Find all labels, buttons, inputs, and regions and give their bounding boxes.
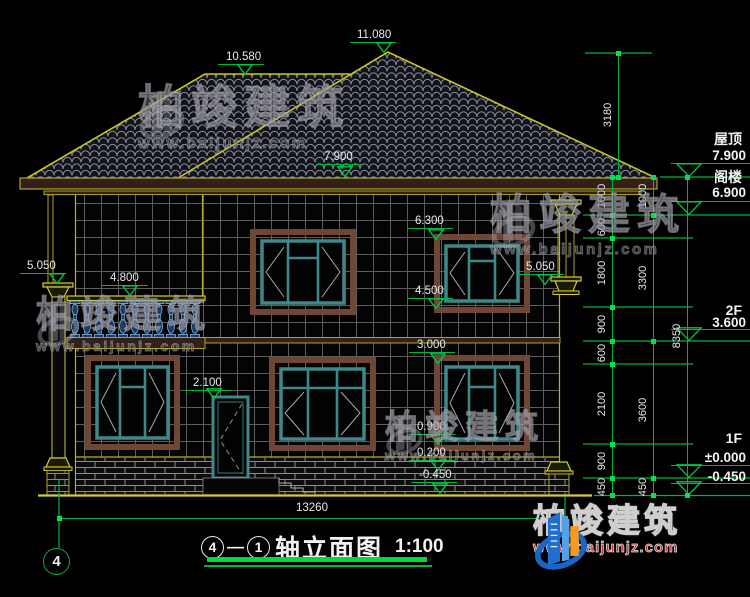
dim-value: 3600 — [637, 387, 649, 433]
dim-tick — [685, 175, 690, 180]
watermark: 柏竣建筑www.baijunjz.com — [36, 296, 212, 354]
elevation-marker-label: 5.050 — [27, 261, 56, 273]
elevation-marker-triangle — [337, 166, 353, 177]
dim-tick — [610, 339, 615, 344]
dim-tick — [685, 493, 690, 498]
elevation-marker-triangle — [537, 274, 553, 285]
elevation-marker-label: 11.080 — [357, 30, 391, 42]
door-stoop — [203, 478, 279, 495]
elevation-marker-triangle — [432, 483, 448, 494]
brand-logo: 柏竣建筑 www.baijunjz.com — [533, 503, 681, 556]
watermark-logo-icon — [490, 194, 537, 254]
title-axis-bubble-start: 4 — [201, 536, 224, 559]
dim-tick — [610, 305, 615, 310]
floor-flag-value: -0.450 — [692, 470, 746, 484]
watermark: 柏竣建筑www.baijunjz.com — [138, 84, 350, 152]
floor-flag-value: ±0.000 — [692, 451, 746, 465]
dim-value: 8350 — [671, 313, 683, 359]
dim-tick — [610, 175, 615, 180]
dim-tick — [616, 175, 621, 180]
title-axis-separator: — — [227, 537, 244, 557]
dim-value: 600 — [596, 330, 608, 376]
watermark: 柏竣建筑www.baijunjz.com — [490, 194, 686, 258]
elevation-marker-label: 3.000 — [417, 340, 446, 352]
floor-flag-name: 屋顶 — [696, 132, 742, 146]
elevation-marker-label: 10.580 — [226, 52, 261, 64]
axis-bubble-4: 4 — [43, 548, 70, 575]
dim-chain-line — [687, 177, 688, 495]
floor-flag-value: 7.900 — [692, 149, 746, 163]
dim-tick — [610, 493, 615, 498]
elevation-marker-triangle — [49, 273, 65, 284]
entry-door — [213, 397, 248, 478]
dim-tick — [651, 476, 656, 481]
elevation-marker-triangle — [428, 229, 444, 240]
plinth-brick — [76, 458, 559, 494]
elevation-marker-label: 6.300 — [415, 216, 444, 228]
dim-value: 3300 — [637, 255, 649, 301]
elevation-marker-label: -0.450 — [419, 470, 452, 482]
title-underline — [207, 557, 427, 562]
dim-value: 13260 — [272, 502, 352, 514]
elevation-marker-label: 4.800 — [110, 273, 139, 285]
watermark: 柏竣建筑www.baijunjz.com — [385, 410, 545, 463]
floor-flag-value: 6.900 — [692, 186, 746, 200]
elevation-marker-triangle — [428, 298, 444, 309]
dim-tick — [651, 175, 656, 180]
dim-value: 2100 — [596, 381, 608, 427]
elevation-marker-label: 7.900 — [324, 152, 353, 164]
dim-tick — [616, 51, 621, 56]
elevation-marker-triangle — [237, 64, 253, 75]
elevation-marker-label: 5.050 — [526, 262, 555, 274]
dim-tick — [651, 493, 656, 498]
watermark-logo-icon — [138, 84, 186, 146]
watermark-logo-icon — [36, 296, 80, 352]
eave-fascia — [20, 178, 657, 189]
dim-tick — [651, 339, 656, 344]
floor-flag-name: 阁楼 — [696, 170, 742, 184]
dim-value: 3180 — [602, 92, 614, 138]
window-1f-center — [272, 360, 373, 448]
elevation-marker-triangle — [430, 353, 446, 364]
elevation-marker-triangle — [206, 388, 222, 399]
title-axis-bubble-end: 1 — [247, 536, 270, 559]
dim-chain-line — [618, 53, 619, 177]
title-underline-thin — [204, 565, 432, 567]
drawing-scale: 1:100 — [395, 536, 444, 558]
dim-chain-line — [59, 518, 565, 519]
window-2f-left — [253, 232, 353, 312]
cad-elevation-drawing: 10.58011.0807.9006.3004.5003.0002.1000.9… — [0, 0, 750, 597]
brand-logo-icon — [533, 503, 589, 579]
floor-flag-value: 3.600 — [692, 316, 746, 330]
dim-tick — [610, 362, 615, 367]
elevation-marker-triangle — [376, 42, 392, 53]
floor-flag-name: 1F — [696, 431, 742, 445]
dim-tick — [57, 516, 62, 521]
dim-tick — [610, 476, 615, 481]
window-1f-left — [88, 358, 177, 447]
elevation-marker-label: 4.500 — [415, 286, 444, 298]
watermark-logo-icon — [385, 410, 424, 460]
dim-tick — [610, 442, 615, 447]
